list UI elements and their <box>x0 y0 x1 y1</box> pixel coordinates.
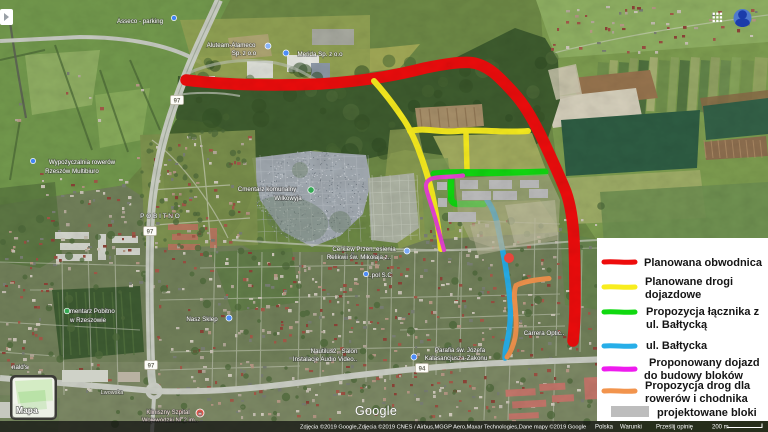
svg-text:Wilkowyja: Wilkowyja <box>274 195 302 202</box>
svg-text:Kalasancjusza-Zakonu: Kalasancjusza-Zakonu <box>425 355 488 362</box>
svg-text:Relikwii św. Mikołaja z..: Relikwii św. Mikołaja z.. <box>327 254 392 261</box>
svg-text:w Rzeszowie: w Rzeszowie <box>69 317 107 324</box>
svg-text:ul. Bałtycka: ul. Bałtycka <box>646 340 708 352</box>
svg-text:..pol S.C: ..pol S.C <box>368 272 392 279</box>
svg-text:Planowane drogi: Planowane drogi <box>645 276 733 288</box>
svg-text:Wypożyczalnia rowerów: Wypożyczalnia rowerów <box>49 159 116 166</box>
svg-text:Zdjęcia ©2019 Google,Zdjęcia ©: Zdjęcia ©2019 Google,Zdjęcia ©2019 CNES … <box>300 423 586 430</box>
svg-text:Google: Google <box>355 404 397 418</box>
svg-text:97: 97 <box>147 229 154 235</box>
svg-text:dojazdowe: dojazdowe <box>645 289 701 301</box>
svg-text:nald's: nald's <box>12 364 28 371</box>
svg-text:P O B I T N O: P O B I T N O <box>140 213 180 220</box>
svg-text:projektowane bloki: projektowane bloki <box>657 407 757 419</box>
svg-text:Propozycja drog dla: Propozycja drog dla <box>645 380 751 392</box>
svg-text:Sp. z o.o: Sp. z o.o <box>232 50 257 57</box>
svg-text:Instalacje Audio Video..: Instalacje Audio Video.. <box>293 356 357 363</box>
svg-text:94: 94 <box>419 366 426 372</box>
svg-text:rowerów i chodnika: rowerów i chodnika <box>645 393 749 405</box>
svg-text:Parafia św. Józefa: Parafia św. Józefa <box>435 347 486 354</box>
svg-text:97: 97 <box>174 98 181 104</box>
svg-text:Mapa: Mapa <box>16 405 38 415</box>
svg-text:Rzeszów Multibiuro: Rzeszów Multibiuro <box>45 168 99 175</box>
svg-text:Prześlij opinię: Prześlij opinię <box>656 425 694 431</box>
svg-text:Polska: Polska <box>595 425 614 431</box>
svg-text:ul. Bałtycką: ul. Bałtycką <box>646 319 708 331</box>
svg-text:Merida Sp. z o.o: Merida Sp. z o.o <box>297 51 343 58</box>
svg-text:Proponowany dojazd: Proponowany dojazd <box>649 357 760 369</box>
svg-text:Nasz Sklep: Nasz Sklep <box>186 316 218 323</box>
svg-text:Planowana obwodnica: Planowana obwodnica <box>644 257 763 269</box>
svg-text:Cmentarz Pobitno: Cmentarz Pobitno <box>65 308 115 315</box>
svg-text:Propozycja łącznika z: Propozycja łącznika z <box>646 306 760 318</box>
svg-text:H: H <box>198 412 201 417</box>
svg-text:200 m: 200 m <box>712 425 729 431</box>
svg-text:Carrera Optic..: Carrera Optic.. <box>524 330 565 337</box>
svg-text:Asseco - parking: Asseco - parking <box>117 18 164 25</box>
svg-text:Kliniszny Szpital: Kliniszny Szpital <box>146 410 189 416</box>
svg-text:Warunki: Warunki <box>620 425 642 431</box>
svg-text:97: 97 <box>148 363 155 369</box>
svg-text:Aluteam-Alameco: Aluteam-Alameco <box>207 42 256 49</box>
svg-text:Lwowska: Lwowska <box>101 390 125 396</box>
svg-text:Nautilus2 . Salon: Nautilus2 . Salon <box>311 348 358 355</box>
svg-text:Cmentarz komunalny: Cmentarz komunalny <box>238 186 297 193</box>
svg-text:Cerkiew Przen..esienia: Cerkiew Przen..esienia <box>332 246 396 253</box>
